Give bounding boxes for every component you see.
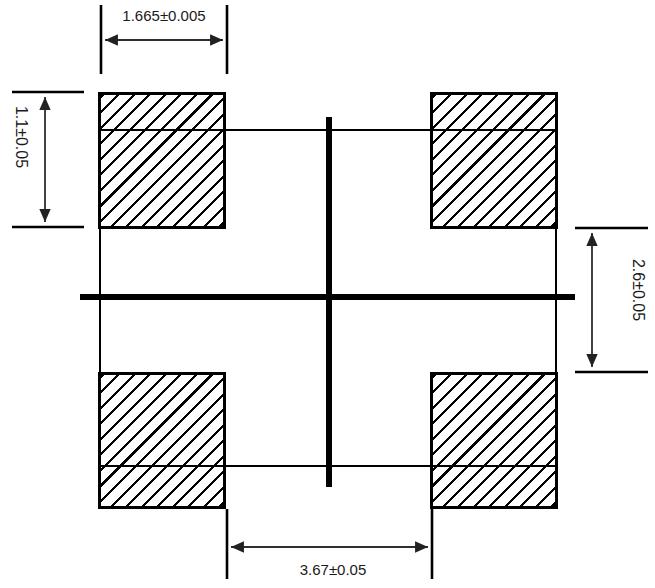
land-pattern-drawing: 1.665±0.005 1.1±0.05 2.6±0.05 3.67±0.05: [0, 0, 655, 588]
dim-label-row-gap: 2.6±0.05: [626, 230, 648, 350]
vertical-centerline: [326, 117, 332, 487]
dim-label-pad-width: 1.665±0.005: [100, 6, 228, 26]
horizontal-centerline: [80, 294, 575, 300]
dim-label-inner-span: 3.67±0.05: [269, 560, 397, 580]
dim-label-pad-height: 1.1±0.05: [9, 77, 31, 197]
